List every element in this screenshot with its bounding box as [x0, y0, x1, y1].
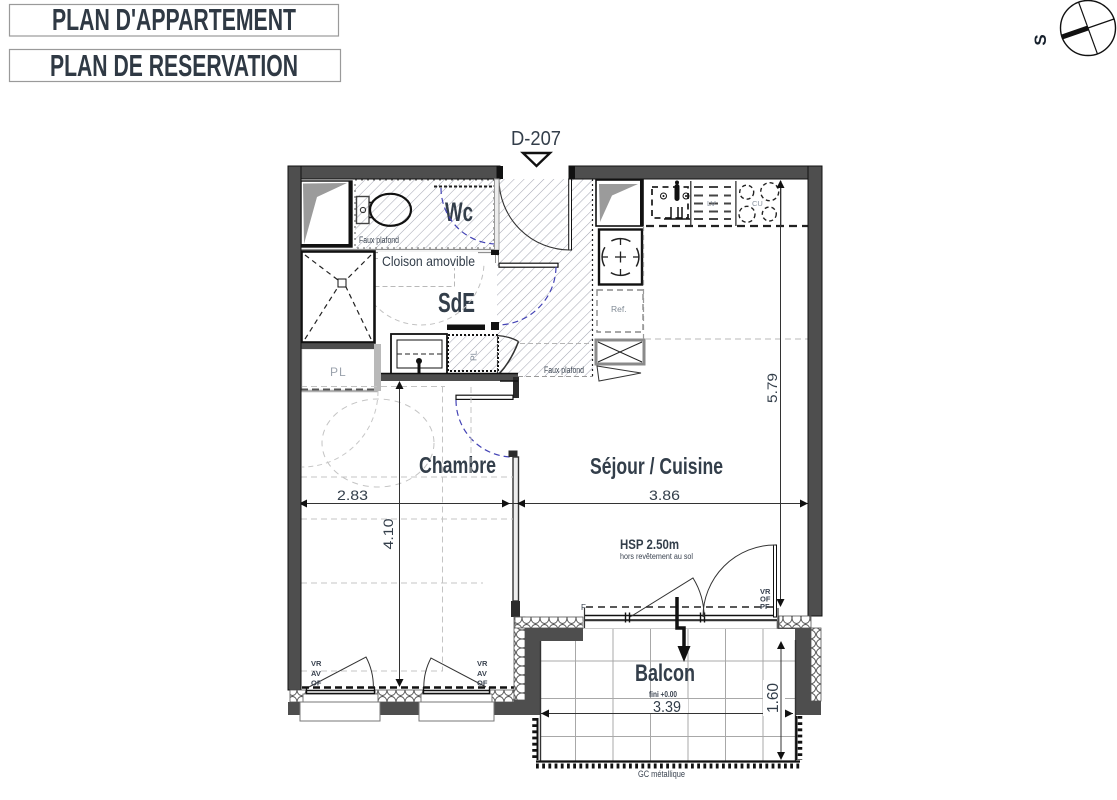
svg-text:4.10: 4.10	[380, 518, 396, 549]
svg-text:Chambre: Chambre	[419, 452, 496, 478]
svg-text:hors revêtement au sol: hors revêtement au sol	[620, 552, 693, 561]
svg-text:VR: VR	[311, 659, 322, 668]
svg-text:2.83: 2.83	[337, 487, 368, 503]
svg-text:S: S	[1031, 34, 1050, 45]
svg-text:5.79: 5.79	[764, 373, 780, 403]
svg-text:GC métallique: GC métallique	[638, 769, 685, 779]
svg-text:1.60: 1.60	[765, 683, 782, 713]
svg-text:Cloison amovible: Cloison amovible	[382, 253, 475, 269]
svg-text:Balcon: Balcon	[635, 660, 695, 687]
svg-text:Séjour / Cuisine: Séjour / Cuisine	[590, 453, 723, 479]
svg-text:PLAN DE RESERVATION: PLAN DE RESERVATION	[50, 48, 298, 83]
svg-text:Faux plafond: Faux plafond	[359, 235, 399, 245]
svg-text:CU: CU	[752, 199, 763, 208]
svg-text:AV: AV	[311, 669, 321, 678]
svg-text:PL: PL	[330, 365, 347, 379]
svg-text:3.39: 3.39	[653, 699, 681, 716]
svg-text:LV: LV	[707, 199, 716, 208]
svg-text:PF: PF	[760, 602, 770, 611]
svg-text:D-207: D-207	[511, 128, 561, 150]
svg-text:OF: OF	[477, 679, 488, 688]
svg-text:VR: VR	[477, 659, 488, 668]
svg-text:Wc: Wc	[445, 197, 473, 227]
svg-text:fini +0.00: fini +0.00	[649, 689, 677, 699]
svg-text:F: F	[581, 603, 586, 612]
svg-text:PL: PL	[469, 350, 479, 361]
svg-text:OF: OF	[311, 679, 322, 688]
svg-text:AV: AV	[477, 669, 487, 678]
svg-text:HSP 2.50m: HSP 2.50m	[620, 537, 679, 552]
svg-text:3.86: 3.86	[649, 487, 680, 503]
svg-text:Faux plafond: Faux plafond	[544, 365, 584, 375]
svg-text:Ref.: Ref.	[611, 304, 627, 314]
svg-text:PLAN D'APPARTEMENT: PLAN D'APPARTEMENT	[52, 2, 296, 37]
